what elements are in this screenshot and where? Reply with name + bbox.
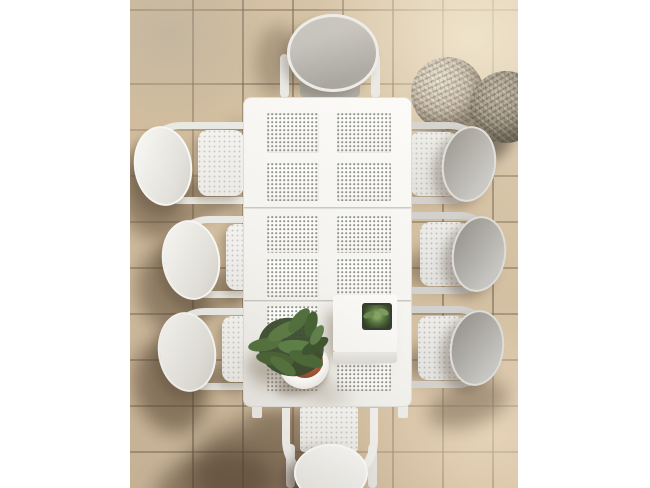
chair-head-bottom [276, 404, 384, 488]
square-planter [362, 303, 392, 330]
terrace-photo [130, 0, 518, 488]
panel-row [267, 216, 391, 253]
perforated-panel [337, 113, 391, 153]
perforated-panel [337, 163, 391, 201]
perforated-panel [267, 216, 319, 253]
chair-backrest [287, 14, 379, 92]
panel-row [267, 113, 391, 153]
chair-seat [198, 130, 244, 196]
perforated-panel [267, 113, 319, 153]
right-margin [518, 0, 650, 488]
left-margin [0, 0, 130, 488]
panel-row [267, 259, 391, 297]
panel-row [267, 163, 391, 201]
photo-canvas [0, 0, 650, 488]
extension-seam [244, 207, 411, 210]
perforated-panel [337, 259, 391, 297]
perforated-panel [267, 259, 319, 297]
chair-left-1 [132, 124, 246, 204]
perforated-panel [337, 216, 391, 253]
white-riser-front [333, 352, 397, 363]
chair-head-top [278, 6, 382, 100]
perforated-panel [267, 163, 319, 201]
